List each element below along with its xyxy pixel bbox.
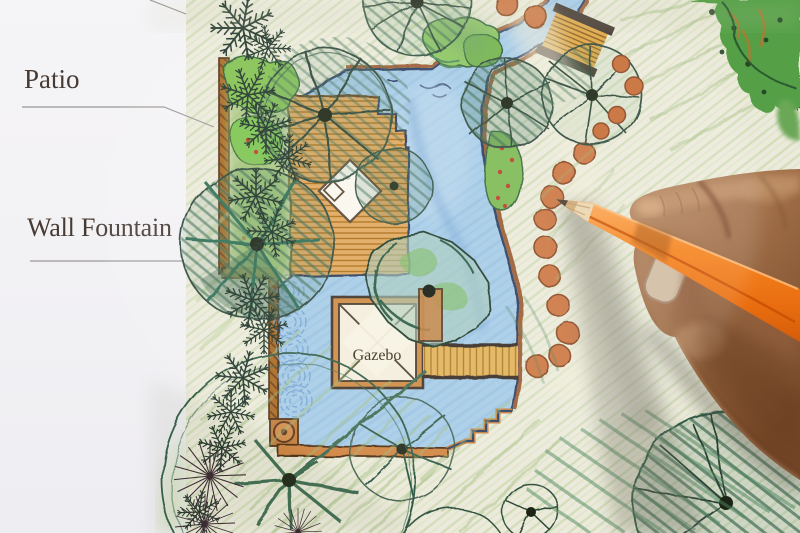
- svg-text:Patio: Patio: [24, 64, 80, 94]
